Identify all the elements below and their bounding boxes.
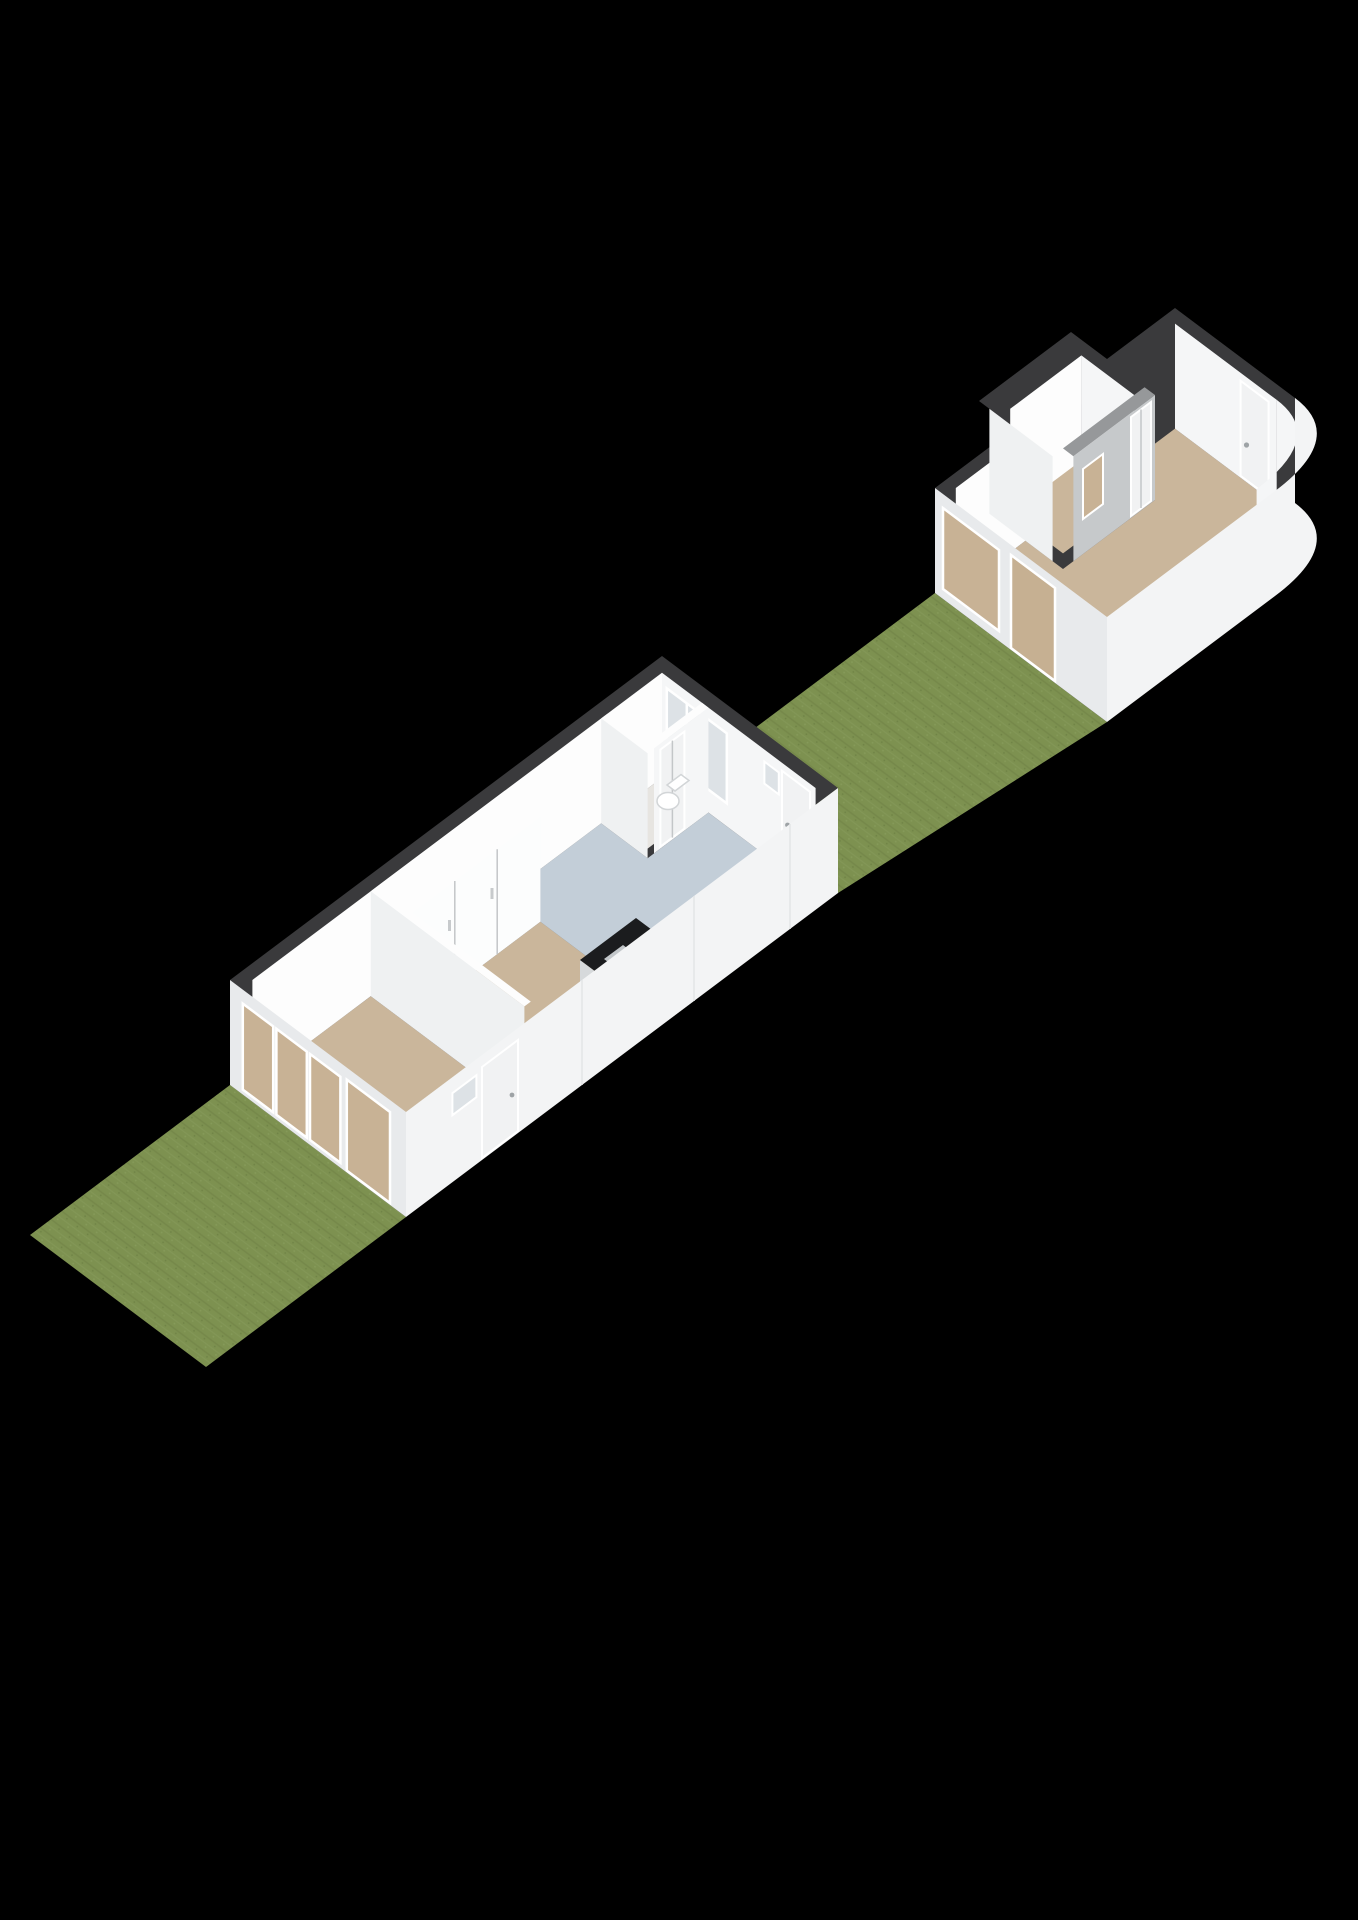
- closet-handle-left: [448, 920, 451, 931]
- floor-plan-canvas: [0, 0, 1358, 1920]
- entrance-door-handle: [510, 1093, 515, 1098]
- shed-side-door: [1241, 381, 1269, 497]
- shed-side-door-handle: [1244, 442, 1249, 447]
- floor-plan-3d-render[interactable]: [0, 0, 1358, 1920]
- toilet-bowl: [657, 793, 679, 810]
- closet-handle-right: [491, 888, 494, 899]
